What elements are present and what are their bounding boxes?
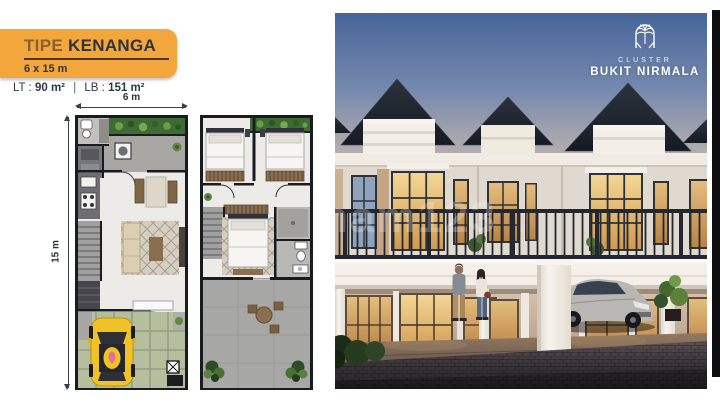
ground-floor-plan xyxy=(75,115,188,390)
right-black-bar xyxy=(712,10,720,377)
type-label: TIPE xyxy=(24,36,63,55)
type-name: KENANGA xyxy=(68,36,156,55)
cluster-logo: CLUSTER BUKIT NIRMALA xyxy=(587,20,703,78)
lt-label: LT : xyxy=(13,82,32,94)
type-title: TIPE KENANGA xyxy=(24,36,177,56)
cornice xyxy=(335,119,707,168)
master-bedroom xyxy=(222,214,274,275)
bedroom-1 xyxy=(206,128,250,181)
terrace xyxy=(203,280,310,388)
brochure-page: TIPE KENANGA 6 x 15 m LT : 90 m² | LB : … xyxy=(0,0,720,420)
arch-palm-icon xyxy=(631,20,659,50)
height-dimension-line xyxy=(68,117,69,388)
bathroom xyxy=(78,118,109,146)
lot-dimensions: 6 x 15 m xyxy=(24,63,177,75)
stairs-upper xyxy=(203,207,225,259)
title-underline xyxy=(24,58,169,60)
width-dimension-label: 6 m xyxy=(75,92,188,103)
upper-floor-plan-drawing xyxy=(200,115,313,390)
cluster-name: BUKIT NIRMALA xyxy=(587,66,703,78)
cluster-label: CLUSTER xyxy=(587,57,703,64)
car-topview xyxy=(88,318,136,386)
upper-floor-plan xyxy=(200,115,313,390)
living-room xyxy=(121,221,185,275)
watermark: nam123 xyxy=(335,193,497,243)
dining-set xyxy=(135,177,177,207)
bathroom-upper xyxy=(274,207,310,277)
bedroom-2 xyxy=(260,128,304,181)
kitchen xyxy=(78,173,100,219)
lt-value: 90 m² xyxy=(35,82,65,94)
house-render-photo: CLUSTER BUKIT NIRMALA nam123 xyxy=(335,13,707,389)
stairs xyxy=(78,221,102,309)
height-dimension-label: 15 m xyxy=(51,222,62,282)
type-banner: TIPE KENANGA 6 x 15 m xyxy=(0,29,177,78)
balcony-slab xyxy=(335,259,707,289)
width-dimension-line xyxy=(77,107,186,108)
ground-floor-plan-drawing xyxy=(75,115,188,390)
